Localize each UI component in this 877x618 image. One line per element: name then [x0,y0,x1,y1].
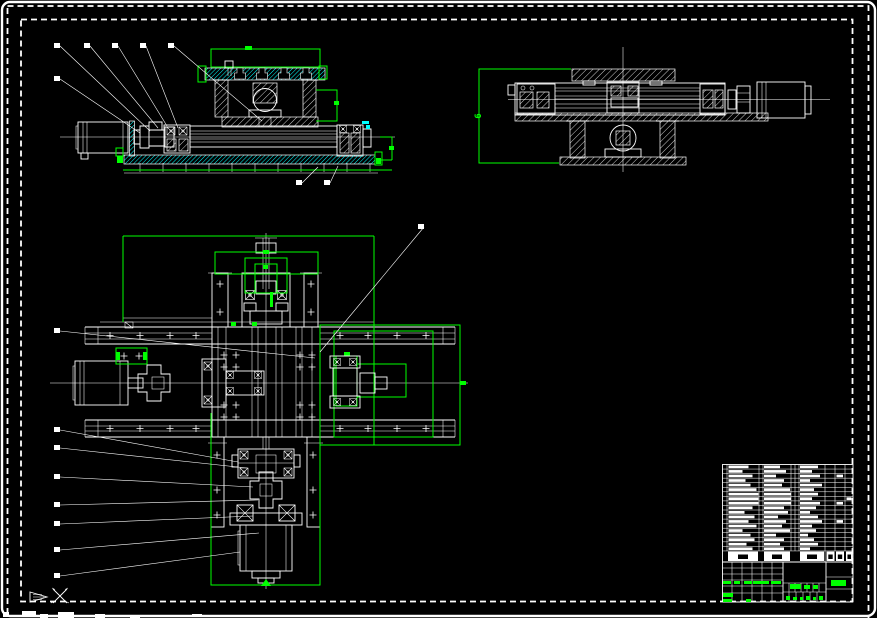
side-dimension-text: 6 [474,113,484,118]
cad-canvas: 6 [0,0,877,618]
section-mark-icon [362,121,369,124]
drawing-svg[interactable]: 6 [0,0,877,618]
side-base-strip[interactable] [515,113,768,121]
side-top-plate[interactable] [572,69,675,81]
